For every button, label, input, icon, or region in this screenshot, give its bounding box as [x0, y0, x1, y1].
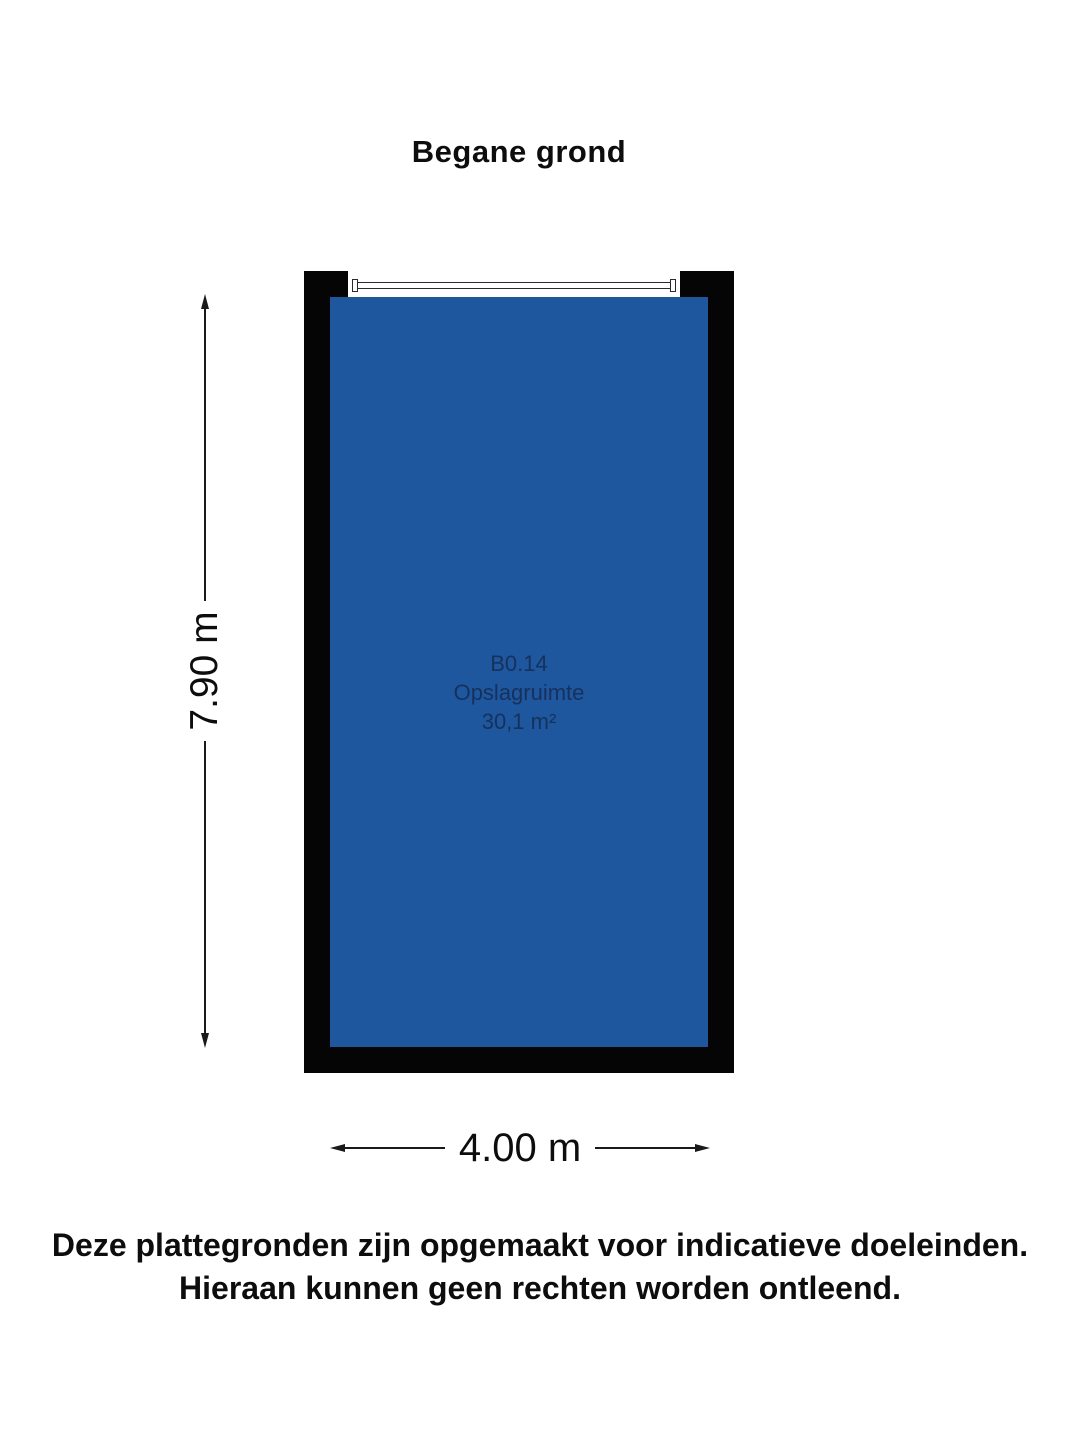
dimension-line	[204, 309, 206, 601]
disclaimer-line2: Hieraan kunnen geen rechten worden ontle…	[0, 1267, 1080, 1310]
room-b014: B0.14 Opslagruimte 30,1 m²	[330, 297, 708, 1047]
dimension-horizontal-label: 4.00 m	[459, 1126, 581, 1171]
page-title: Begane grond	[304, 134, 734, 170]
window-opening	[348, 271, 680, 297]
dimension-vertical-label: 7.90 m	[183, 611, 227, 730]
arrow-down-icon	[201, 1033, 209, 1048]
room-label: B0.14 Opslagruimte 30,1 m²	[330, 649, 708, 736]
dimension-line	[204, 741, 206, 1033]
room-name: Opslagruimte	[330, 678, 708, 707]
disclaimer-line1: Deze plattegronden zijn opgemaakt voor i…	[0, 1224, 1080, 1267]
window-icon	[354, 282, 674, 289]
room-area: 30,1 m²	[330, 707, 708, 736]
room-code: B0.14	[330, 649, 708, 678]
arrow-up-icon	[201, 294, 209, 309]
dimension-line	[595, 1147, 695, 1149]
floorplan-page: Begane grond B0.14 Opslagruimte 30,1 m² …	[0, 0, 1080, 1440]
arrow-left-icon	[330, 1144, 345, 1152]
disclaimer: Deze plattegronden zijn opgemaakt voor i…	[0, 1224, 1080, 1310]
dimension-horizontal: 4.00 m	[330, 1128, 710, 1168]
dimension-line	[345, 1147, 445, 1149]
room-walls: B0.14 Opslagruimte 30,1 m²	[304, 271, 734, 1073]
arrow-right-icon	[695, 1144, 710, 1152]
